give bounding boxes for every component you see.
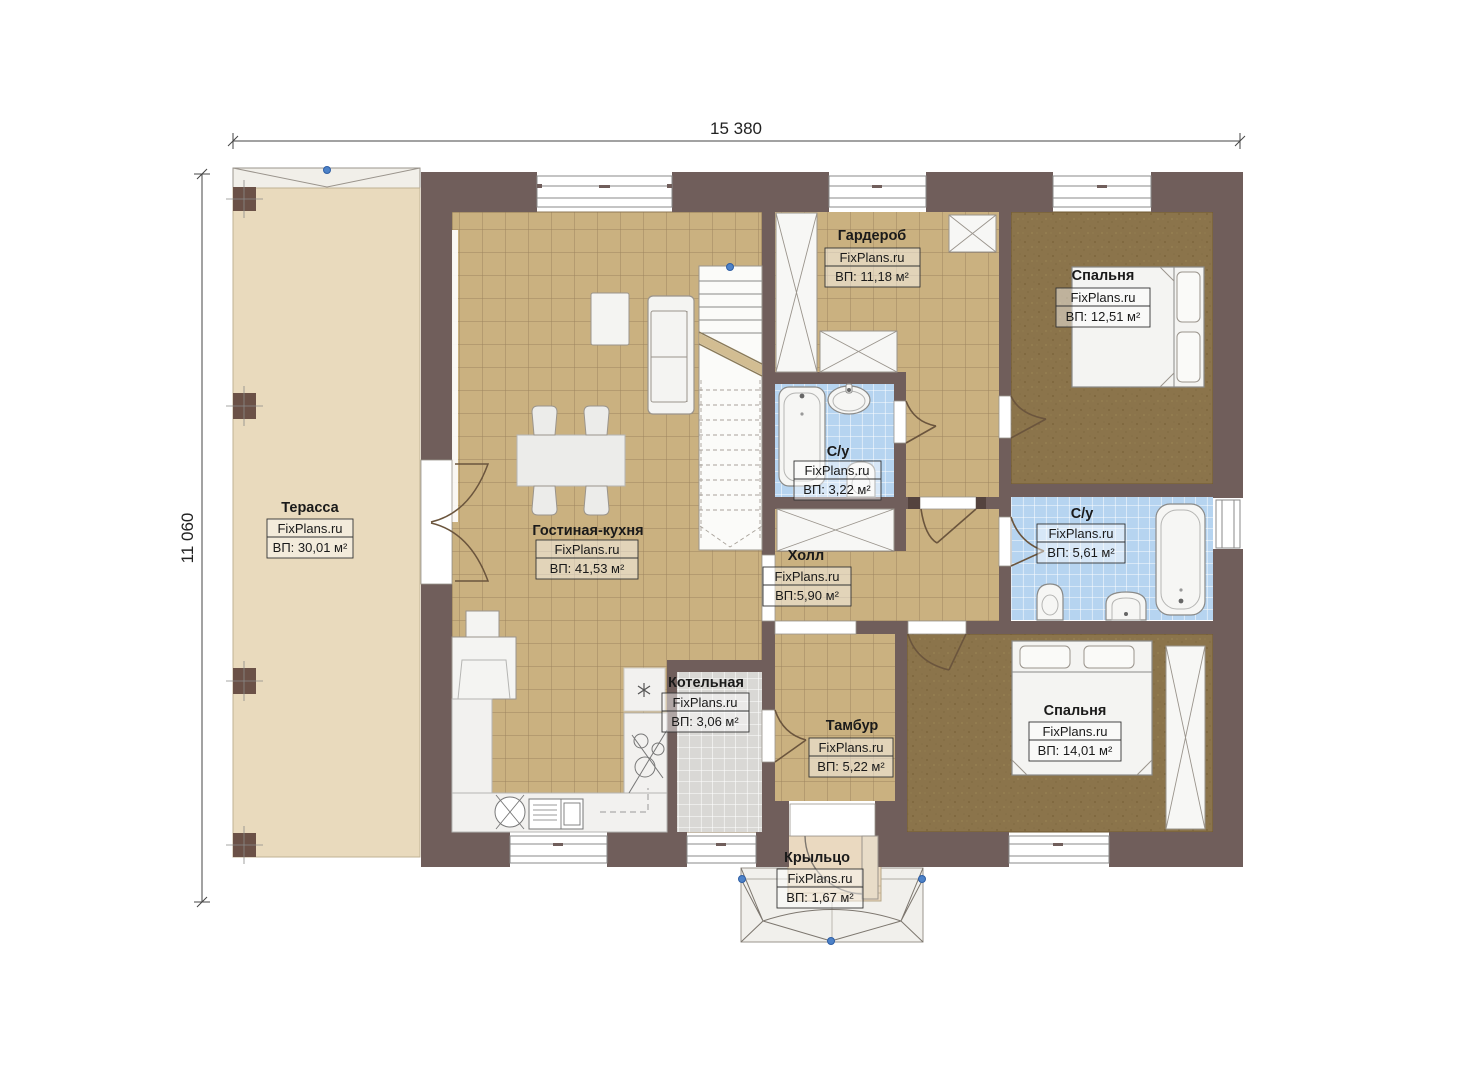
svg-text:С/у: С/у (1071, 506, 1094, 522)
svg-text:FixPlans.ru: FixPlans.ru (672, 695, 737, 710)
svg-text:ВП: 5,22 м²: ВП: 5,22 м² (817, 759, 885, 774)
svg-text:ВП: 12,51 м²: ВП: 12,51 м² (1066, 309, 1141, 324)
svg-text:FixPlans.ru: FixPlans.ru (787, 871, 852, 886)
svg-text:ВП: 30,01 м²: ВП: 30,01 м² (273, 540, 348, 555)
svg-text:FixPlans.ru: FixPlans.ru (1070, 290, 1135, 305)
svg-text:11 060: 11 060 (178, 513, 197, 564)
svg-text:FixPlans.ru: FixPlans.ru (554, 542, 619, 557)
svg-text:15 380: 15 380 (710, 119, 762, 138)
svg-text:Спальня: Спальня (1072, 268, 1135, 284)
svg-text:FixPlans.ru: FixPlans.ru (1042, 724, 1107, 739)
svg-text:Холл: Холл (788, 548, 824, 564)
svg-text:Крыльцо: Крыльцо (784, 850, 850, 866)
svg-text:FixPlans.ru: FixPlans.ru (1048, 526, 1113, 541)
svg-text:С/у: С/у (827, 444, 850, 460)
svg-text:Котельная: Котельная (668, 675, 744, 691)
svg-text:ВП: 41,53 м²: ВП: 41,53 м² (550, 561, 625, 576)
svg-text:Гардероб: Гардероб (838, 228, 907, 244)
svg-text:Терасса: Терасса (281, 500, 339, 516)
svg-text:ВП: 11,18 м²: ВП: 11,18 м² (835, 269, 909, 284)
svg-text:Спальня: Спальня (1044, 703, 1107, 719)
svg-text:FixPlans.ru: FixPlans.ru (774, 569, 839, 584)
svg-text:Тамбур: Тамбур (826, 718, 879, 734)
svg-text:ВП: 14,01 м²: ВП: 14,01 м² (1038, 743, 1113, 758)
svg-text:ВП: 3,22 м²: ВП: 3,22 м² (803, 482, 871, 497)
svg-text:ВП: 3,06 м²: ВП: 3,06 м² (671, 714, 739, 729)
svg-text:Гостиная-кухня: Гостиная-кухня (532, 523, 643, 539)
svg-text:FixPlans.ru: FixPlans.ru (277, 521, 342, 536)
svg-text:FixPlans.ru: FixPlans.ru (804, 463, 869, 478)
svg-text:ВП:5,90 м²: ВП:5,90 м² (775, 588, 839, 603)
svg-text:ВП: 1,67 м²: ВП: 1,67 м² (786, 890, 854, 905)
svg-text:FixPlans.ru: FixPlans.ru (839, 250, 904, 265)
svg-text:FixPlans.ru: FixPlans.ru (818, 740, 883, 755)
svg-text:ВП: 5,61 м²: ВП: 5,61 м² (1047, 545, 1115, 560)
